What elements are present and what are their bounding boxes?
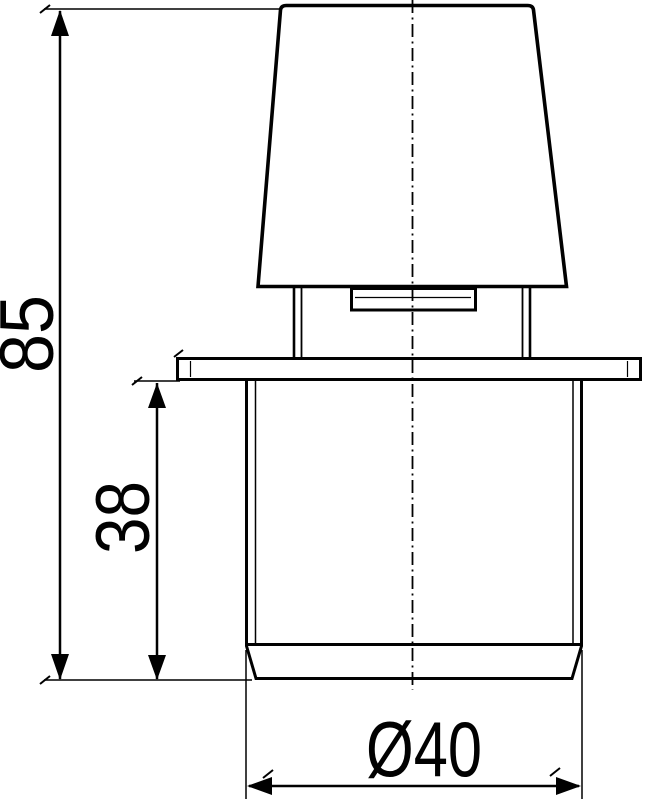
end-tick	[550, 768, 560, 776]
end-tick	[263, 770, 273, 778]
flange-outline	[178, 359, 641, 380]
dimension-insert-depth: 38	[81, 350, 183, 680]
bottom-reference	[40, 676, 252, 684]
flange	[178, 359, 641, 380]
end-tick	[174, 350, 183, 357]
dimension-overall-height: 85	[0, 5, 282, 680]
button-plate-outline	[352, 289, 476, 311]
dimension-label-diameter: Ø40	[366, 705, 482, 793]
dimension-drawing: 85 38 Ø40	[0, 0, 647, 800]
dimension-label-insert-depth: 38	[81, 481, 166, 554]
arrowhead-up-icon	[148, 383, 166, 408]
arrowhead-right-icon	[556, 777, 581, 795]
arrowhead-down-icon	[148, 655, 166, 680]
body-outline	[247, 380, 582, 679]
technical-drawing-canvas: 85 38 Ø40	[0, 0, 647, 800]
button-plate	[352, 289, 476, 311]
arrowhead-left-icon	[247, 777, 272, 795]
body	[247, 380, 582, 679]
arrowhead-down-icon	[51, 654, 69, 680]
dimension-label-overall-height: 85	[0, 295, 70, 373]
arrowhead-up-icon	[51, 10, 69, 36]
